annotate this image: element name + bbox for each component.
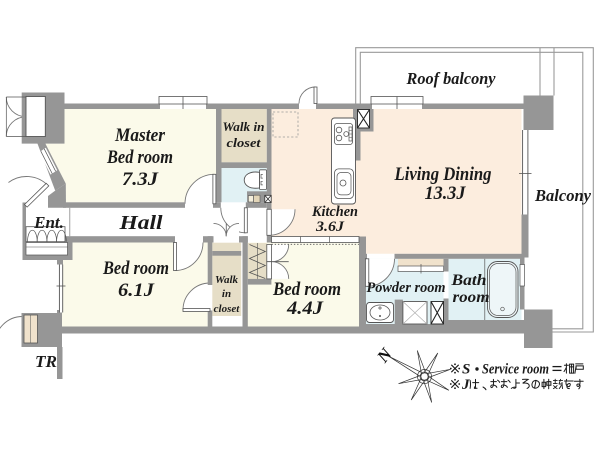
svg-text:J: J bbox=[461, 377, 470, 393]
svg-text:Walk in: Walk in bbox=[223, 120, 265, 134]
svg-text:7.3J: 7.3J bbox=[122, 169, 159, 190]
svg-text:Bed room: Bed room bbox=[102, 258, 169, 279]
svg-text:closet: closet bbox=[214, 303, 241, 315]
svg-text:3.6J: 3.6J bbox=[315, 219, 345, 235]
svg-text:Balcony: Balcony bbox=[534, 186, 592, 205]
svg-text:Powder room: Powder room bbox=[367, 280, 446, 296]
svg-text:Ent.: Ent. bbox=[33, 213, 64, 232]
svg-text:in: in bbox=[222, 288, 231, 300]
svg-text:Walk: Walk bbox=[215, 274, 239, 286]
svg-text:Hall: Hall bbox=[118, 212, 163, 234]
svg-text:Roof balcony: Roof balcony bbox=[406, 69, 497, 88]
svg-text:closet: closet bbox=[227, 136, 262, 150]
svg-text:Bed room: Bed room bbox=[106, 147, 173, 168]
svg-text:S: S bbox=[462, 362, 470, 378]
svg-text:Kitchen: Kitchen bbox=[311, 204, 358, 220]
svg-text:4.4J: 4.4J bbox=[286, 298, 324, 319]
svg-text:Service room: Service room bbox=[482, 362, 549, 378]
svg-text:6.1J: 6.1J bbox=[118, 280, 155, 301]
svg-text:Bath: Bath bbox=[450, 272, 486, 289]
svg-text:13.3J: 13.3J bbox=[425, 183, 466, 204]
svg-text:Living Dining: Living Dining bbox=[394, 164, 492, 185]
svg-text:Bed room: Bed room bbox=[272, 279, 341, 300]
svg-text:room: room bbox=[453, 289, 490, 306]
svg-text:TR: TR bbox=[35, 352, 57, 371]
svg-text:Master: Master bbox=[114, 125, 165, 146]
